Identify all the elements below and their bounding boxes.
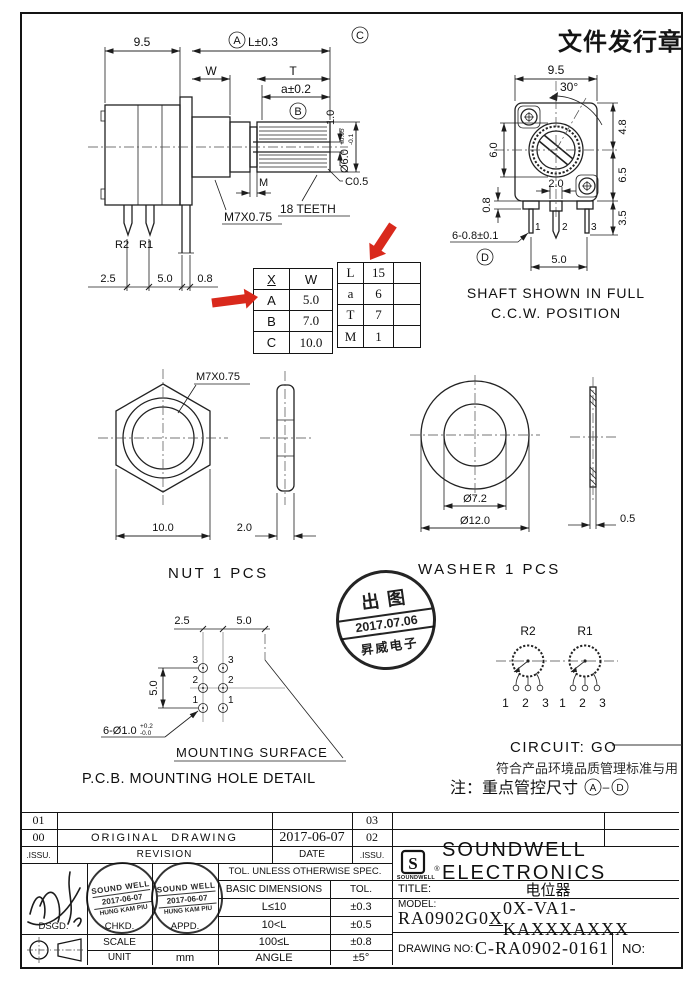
svg-text:A: A: [590, 783, 597, 794]
svg-text:1: 1: [228, 695, 234, 706]
washer-dim-outer: Ø12.0: [460, 515, 490, 527]
dim-1-0: 1.0: [325, 110, 337, 125]
label-a: A: [233, 35, 241, 47]
title-label: TITLE:: [398, 880, 458, 898]
circuit-r2: R2: [520, 624, 536, 638]
rev-issu-03: 03: [352, 812, 392, 829]
dim-w: W: [205, 64, 217, 78]
svg-text:Ø6.0: Ø6.0: [339, 149, 351, 173]
unit-value: mm: [152, 950, 218, 965]
fv-pin1: 1: [535, 222, 541, 233]
soundwell-logo: S: [400, 850, 432, 874]
rev-issu-00: 00: [20, 829, 57, 846]
washer-views: [410, 375, 618, 500]
size-row-c: C: [254, 332, 290, 353]
nut-views: [98, 369, 312, 507]
fv-dim-4-8: 4.8: [617, 119, 629, 134]
washer-caption: WASHER 1 PCS: [418, 561, 561, 578]
pcb-detail-drawing: 2.5 5.0 5.0 3 2 1 3 2 1 6-Ø1.0 +0.2 -0.0…: [70, 610, 370, 790]
dim-t: T: [289, 64, 297, 78]
fv-dim-pins: 6-0.8±0.1: [452, 230, 498, 242]
tol-header: TOL. UNLESS OTHERWISE SPEC.: [218, 863, 392, 880]
fv-dim-0-8: 0.8: [481, 197, 493, 212]
rev-h-issu: .ISSU.: [20, 846, 57, 863]
circuit-pins-r2: 1 2 3: [502, 696, 554, 710]
fv-dim-5-0: 5.0: [551, 254, 566, 266]
rev-h-issu2: .ISSU.: [352, 846, 392, 863]
dim-m: M: [259, 177, 268, 189]
red-arrows: [205, 218, 405, 318]
model-underlined-x: X: [489, 908, 503, 929]
pcb-caption: P.C.B. MOUNTING HOLE DETAIL: [82, 771, 316, 787]
label-b: B: [294, 106, 301, 118]
front-view-drawing: 9.5 30° 4.8 6.5 3.5 6.0 0.8 2.0 1 2 3 6-…: [440, 55, 650, 325]
rev-h-revision: REVISION: [57, 846, 272, 863]
drawing-sheet: 文件发行章: [0, 0, 700, 990]
registered-mark: ®: [432, 864, 442, 874]
pcb-geometry: [190, 632, 343, 758]
svg-text:–: –: [603, 780, 610, 794]
rev-date-value: 2017-06-07: [272, 829, 352, 846]
pcb-dim-5-0v: 5.0: [148, 680, 160, 695]
circuit-label: CIRCUIT: GO: [510, 739, 617, 756]
dim-5-0: 5.0: [157, 273, 172, 285]
fv-dim-6-0: 6.0: [488, 142, 500, 157]
svg-text:+0.05: +0.05: [339, 128, 346, 145]
pcb-dimensions: [101, 626, 346, 761]
fv-dim-6-5: 6.5: [617, 167, 629, 182]
dim-9-5: 9.5: [134, 35, 151, 49]
dim-a-tol: a±0.2: [281, 82, 311, 96]
label-d: D: [481, 252, 489, 264]
circuit-note-2: 注：重点管控尺寸: [450, 779, 578, 797]
tol-col1-header: BASIC DIMENSIONS: [218, 880, 330, 898]
nut-thread: M7X0.75: [196, 371, 240, 383]
pcb-surface-label: MOUNTING SURFACE: [176, 745, 328, 760]
svg-text:3: 3: [192, 655, 198, 666]
fv-pin2: 2: [562, 222, 568, 233]
pcb-hole-note: 6-Ø1.0: [103, 725, 137, 737]
nut-dimensions: [116, 469, 316, 540]
model-value: RA0902G0X0X-VA1-KAXXXAXXX: [398, 906, 679, 931]
washer-dim-inner: Ø7.2: [463, 493, 487, 505]
rev-original-drawing: ORIGINAL DRAWING: [57, 829, 272, 846]
nut-dim-10: 10.0: [152, 522, 173, 534]
label-c: C: [356, 30, 364, 42]
scale-value: [152, 934, 218, 950]
nut-dim-2: 2.0: [237, 522, 252, 534]
company-name: SOUNDWELL ELECTRONICS: [442, 846, 679, 878]
dim-dia-6: Ø6.0 +0.05 -0.1: [339, 128, 355, 173]
dim-l: L±0.3: [248, 35, 278, 49]
pcb-dim-2-5: 2.5: [174, 615, 189, 627]
svg-text:2: 2: [192, 675, 198, 686]
fv-caption-1: SHAFT SHOWN IN FULL: [467, 285, 645, 301]
circuit-pins-r1: 1 2 3: [559, 696, 611, 710]
red-arrow-param-table: [369, 223, 397, 261]
fv-caption-2: C.C.W. POSITION: [491, 305, 621, 321]
fv-dim-9-5: 9.5: [548, 63, 565, 77]
svg-text:-0.1: -0.1: [348, 133, 355, 145]
nut-caption: NUT 1 PCS: [168, 565, 269, 582]
circuit-section: R2 R1 1 2 3 1 2 3 CIRCUIT: GO 符合产品环境品质管理…: [440, 615, 690, 800]
document-issue-stamp: 文件发行章: [558, 22, 688, 57]
svg-text:3: 3: [228, 655, 234, 666]
fv-dim-30: 30°: [560, 80, 578, 94]
rev-issu-01: 01: [20, 812, 57, 829]
drawing-no-value: C-RA0902-0161: [472, 932, 612, 965]
fv-pin3: 3: [591, 222, 597, 233]
drawing-no-label: DRAWING NO:: [398, 932, 483, 965]
title-value: 电位器: [458, 880, 638, 898]
svg-text:2: 2: [228, 675, 234, 686]
scale-label: SCALE: [87, 934, 152, 950]
no-label: NO:: [622, 932, 679, 965]
svg-text:S: S: [408, 854, 417, 873]
unit-label: UNIT: [87, 950, 152, 965]
svg-text:1: 1: [192, 695, 198, 706]
pin-r2-label: R2: [115, 239, 129, 251]
tol-col2-header: TOL.: [330, 880, 392, 898]
red-arrow-size-table: [211, 289, 258, 309]
designer-signature: [24, 862, 86, 932]
rev-h-date: DATE: [272, 846, 352, 863]
circuit-r1: R1: [577, 624, 593, 638]
pin-r1-label: R1: [139, 239, 153, 251]
fv-dim-3-5: 3.5: [617, 210, 629, 225]
svg-text:+0.2: +0.2: [140, 723, 153, 730]
teeth-label: 18 TEETH: [280, 202, 336, 216]
pcb-dim-5-0h: 5.0: [236, 615, 251, 627]
front-view-body: [494, 81, 618, 238]
circuit-note-1: 符合产品环境品质管理标准与用: [496, 761, 678, 776]
washer-dim-0-5: 0.5: [620, 513, 635, 525]
washer-drawing: Ø7.2 Ø12.0 0.5 WASHER 1 PCS: [410, 375, 660, 590]
dim-chamfer: C0.5: [345, 176, 368, 188]
nut-drawing: M7X0.75 10.0 2.0 NUT 1 PCS: [90, 365, 320, 590]
svg-text:-0.0: -0.0: [140, 730, 152, 737]
dim-2-5: 2.5: [100, 273, 115, 285]
rev-issu-02: 02: [352, 829, 392, 846]
projection-symbol: [26, 936, 84, 964]
svg-text:D: D: [616, 783, 623, 794]
fv-dim-2-0: 2.0: [548, 178, 563, 190]
